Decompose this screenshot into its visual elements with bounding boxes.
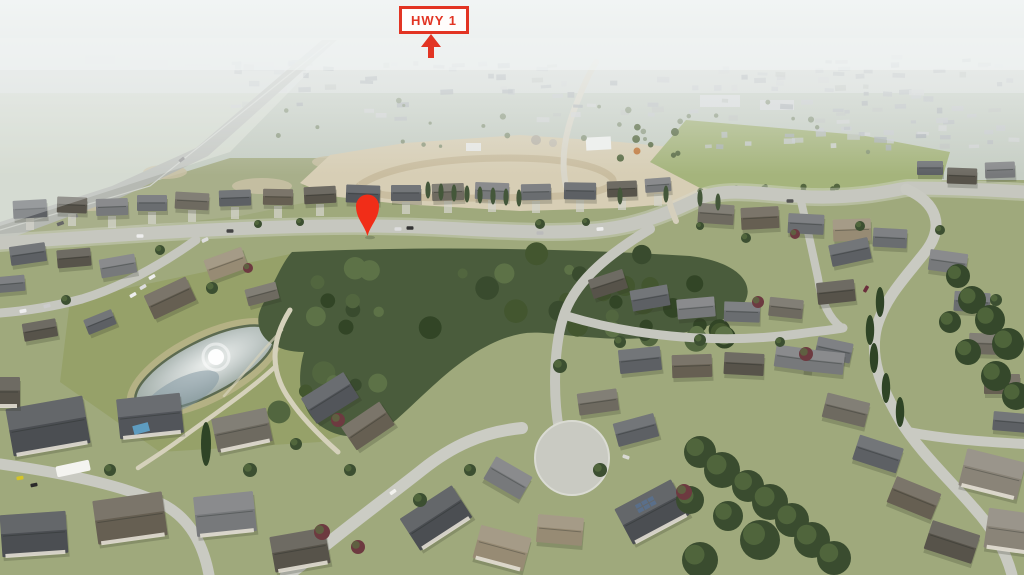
poplar-tree [663,186,668,203]
tree-highlight [991,295,998,302]
house [137,195,168,215]
tree-highlight [244,264,250,270]
poplar-tree [715,194,720,211]
tree-highlight [465,465,472,472]
tree-highlight [677,485,686,494]
tree-highlight [983,363,1000,380]
roof-sunlit [833,218,871,229]
pond-fountain [208,349,224,365]
tree-highlight [255,221,259,225]
tree-highlight [332,414,340,422]
tree-highlight [994,330,1012,348]
tree-highlight [776,338,782,344]
poplar-tree [503,189,508,206]
tree-highlight [536,220,542,226]
highway-label-text: HWY 1 [411,13,457,28]
house [92,491,169,548]
forest-tree [338,320,353,335]
poplar-tree [866,315,874,345]
tree-highlight [615,337,622,344]
house-wall [0,404,17,408]
forest-tree [494,263,514,283]
tree-highlight [856,222,862,228]
house [193,491,258,541]
tree-highlight [697,223,701,227]
tree-highlight [315,525,324,534]
roof-sunlit [137,195,167,202]
tree-highlight [778,506,797,525]
house [992,411,1024,437]
tree-highlight [695,335,702,342]
car [227,229,234,233]
house [174,192,210,215]
tree-highlight [941,313,953,325]
tree-highlight [936,226,942,232]
car [407,226,414,230]
tree-highlight [297,219,301,223]
house [672,354,714,382]
forest-tree [606,310,619,323]
tree-highlight [583,219,587,223]
forest-tree [306,306,326,326]
poplar-tree [876,287,884,317]
poplar-tree [882,373,890,403]
forest-tree [268,401,291,424]
tree-highlight [685,545,705,565]
tree-highlight [734,472,752,490]
house [0,275,27,298]
tree-highlight [554,360,562,368]
roof-sunlit [607,180,637,188]
tree-highlight [207,283,214,290]
cul-de-sac [535,421,609,495]
poplar-tree [477,187,482,204]
house [740,206,780,234]
car [395,227,402,231]
car [537,231,544,235]
poplar-tree [451,185,456,202]
aerial-photo-scene [0,0,1024,575]
roof-sunlit [0,377,20,391]
car [137,234,144,238]
car [787,199,794,203]
roof-sunlit [219,189,251,197]
forest-tree [632,245,651,264]
car [596,227,603,231]
house [263,189,294,210]
forest-tree [320,293,335,308]
tree-highlight [1004,384,1019,399]
tree-highlight [957,341,971,355]
aerial-listing-photo: HWY 1 [0,0,1024,575]
forest-tree [344,257,366,279]
tree-highlight [791,230,797,236]
poplar-tree [516,190,521,207]
roof-sunlit [740,206,778,218]
tree-highlight [156,246,162,252]
house [56,247,93,272]
tree-highlight [977,307,994,324]
location-pin-icon [349,186,387,242]
forest-tree [368,374,387,393]
house [96,198,130,220]
tree-highlight [352,541,360,549]
forest-tree [686,275,703,292]
tree-highlight [948,266,961,279]
house [432,183,466,205]
highway-label: HWY 1 [399,6,469,34]
tree-highlight [345,465,352,472]
poplar-tree [425,182,430,199]
roof-sunlit [788,213,824,224]
roof-sunlit [672,354,712,366]
tree-highlight [62,296,68,302]
poplar-tree [201,422,211,466]
house [816,279,858,309]
tree-highlight [105,465,112,472]
house [872,228,908,253]
house [116,393,185,444]
house [0,377,21,411]
roof-sunlit [564,182,596,190]
house [219,189,253,210]
tree-highlight [244,464,252,472]
roof-sunlit [521,184,551,192]
roof-sunlit [432,183,464,192]
tree-highlight [686,438,704,456]
forest-tree [525,242,548,265]
house [723,352,765,380]
tree-highlight [707,455,727,475]
tree-highlight [797,525,817,545]
house [0,511,70,562]
poplar-tree [617,188,622,205]
poplar-tree [697,190,702,207]
roof-sunlit [391,185,421,192]
house [391,185,422,205]
house [618,346,664,378]
house [304,186,338,209]
house [676,296,717,323]
forest-tree [504,299,528,323]
house [607,180,639,201]
forest-tree [311,275,325,289]
house [564,182,597,204]
poplar-tree [464,186,469,203]
tree-highlight [414,494,422,502]
tree-highlight [753,297,760,304]
tree-highlight [800,348,808,356]
tree-highlight [743,523,765,545]
poplar-tree [896,397,904,427]
poplar-tree [870,343,878,373]
roof-sunlit [724,352,764,364]
tree-highlight [715,503,732,520]
house [768,297,805,324]
forest-tree [346,294,360,308]
house [521,184,552,205]
tree-highlight [960,288,975,303]
forest-tree [419,316,442,339]
forest-tree [475,276,499,300]
forest-tree [373,307,383,317]
tree-highlight [291,439,298,446]
roof-sunlit [263,189,293,197]
house [536,514,586,550]
tree-highlight [742,234,748,240]
tree-highlight [820,544,839,563]
poplar-tree [490,188,495,205]
tree-highlight [594,464,602,472]
roof-sunlit [96,198,128,207]
poplar-tree [438,184,443,201]
forest-tree [458,268,468,278]
tree-highlight [755,487,775,507]
highway-arrow-stem [428,45,434,58]
roof-sunlit [873,228,907,238]
